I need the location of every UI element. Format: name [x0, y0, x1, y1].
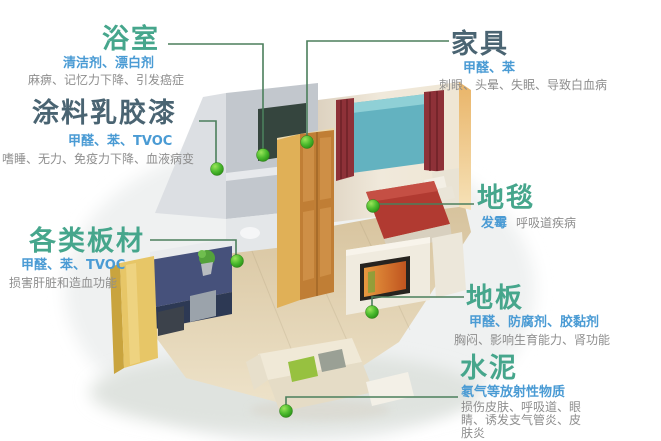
- label-paint-symptoms: 嗜睡、无力、免疫力下降、血液病变: [2, 152, 194, 166]
- label-carpet-detail: 发霉 呼吸道疾病: [481, 216, 576, 232]
- label-boards-pollutants: 甲醛、苯、TVOC: [21, 259, 125, 274]
- label-cement-title: 水泥: [460, 355, 518, 382]
- wardrobe: [277, 128, 334, 308]
- marker-furniture: [301, 136, 314, 149]
- label-floor-symptoms: 胸闷、影响生育能力、肾功能: [454, 333, 610, 347]
- marker-cement: [280, 405, 293, 418]
- marker-paint: [211, 163, 224, 176]
- label-floor-title: 地板: [466, 285, 524, 312]
- label-furniture-symptoms: 刺眼、头晕、失眠、导致白血病: [439, 78, 607, 92]
- infographic-canvas: 浴室 清洁剂、漂白剂 麻痹、记忆力下降、引发癌症 涂料乳胶漆 甲醛、苯、TVOC…: [0, 0, 661, 441]
- label-bathroom-symptoms: 麻痹、记忆力下降、引发癌症: [28, 73, 184, 87]
- toilet: [240, 227, 260, 239]
- marker-floor: [366, 306, 379, 319]
- label-boards-title: 各类板材: [29, 228, 145, 255]
- label-bathroom-title: 浴室: [102, 26, 160, 53]
- label-furniture-pollutants: 甲醛、苯: [463, 62, 515, 77]
- label-cement-symptoms: 损伤皮肤、呼吸道、眼睛、诱发支气管炎、皮肤炎: [461, 401, 583, 441]
- label-paint-pollutants: 甲醛、苯、TVOC: [68, 135, 172, 150]
- marker-bathroom: [257, 149, 270, 162]
- label-carpet-title: 地毯: [477, 185, 535, 212]
- marker-carpet: [367, 200, 380, 213]
- label-carpet-symptoms: 呼吸道疾病: [516, 216, 576, 230]
- marker-boards: [231, 255, 244, 268]
- label-cement-pollutants: 氡气等放射性物质: [461, 386, 565, 401]
- label-furniture-title: 家具: [451, 31, 509, 58]
- label-boards-symptoms: 损害肝脏和造血功能: [9, 276, 117, 290]
- label-carpet-pollutants: 发霉: [481, 217, 507, 232]
- label-bathroom-pollutants: 清洁剂、漂白剂: [63, 57, 154, 72]
- label-floor-pollutants: 甲醛、防腐剂、胶黏剂: [469, 316, 599, 331]
- label-paint-title: 涂料乳胶漆: [32, 100, 177, 127]
